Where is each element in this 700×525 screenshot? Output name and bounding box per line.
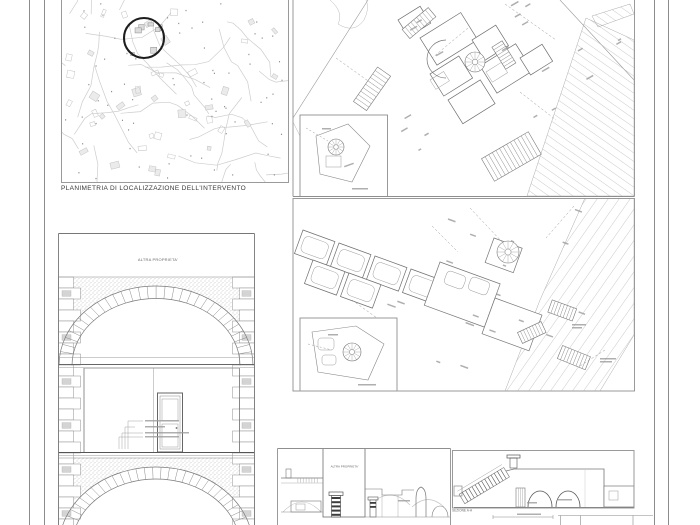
site-plan-drawing: [0, 0, 330, 234]
elevation-label: ALTRA PROPRIETA': [118, 258, 198, 262]
drawing-sheet: PLANIMETRIA DI LOCALIZZAZIONE DELL'INTER…: [0, 0, 700, 525]
center-section-drawing: [278, 448, 451, 525]
sheet-drawing: [0, 0, 700, 525]
right-section-drawing: [453, 451, 635, 509]
lower-floor-plan-drawing: [293, 198, 635, 391]
right-section-caption: SEZIONE A-A: [452, 509, 488, 512]
upper-floor-plan-drawing: [293, 0, 635, 197]
center-section-label: ALTRA PROPRIETA': [325, 465, 364, 468]
arch-elevation-drawing: [59, 234, 255, 525]
site-plan-caption: PLANIMETRIA DI LOCALIZZAZIONE DELL'INTER…: [61, 186, 301, 193]
title-block-row: [493, 514, 653, 525]
